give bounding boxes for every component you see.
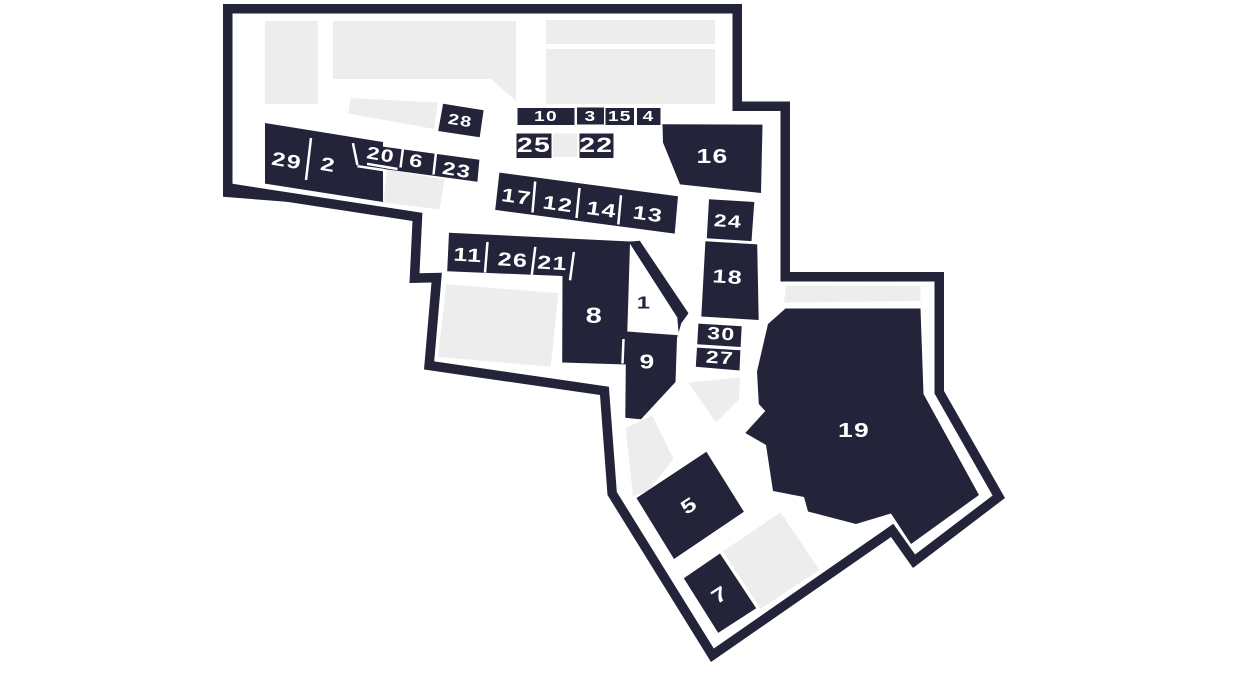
svg-text:24: 24 [713, 211, 742, 232]
svg-text:27: 27 [705, 347, 734, 368]
svg-text:12: 12 [541, 191, 574, 216]
svg-text:13: 13 [631, 201, 664, 226]
svg-text:11: 11 [453, 243, 483, 266]
svg-text:9: 9 [639, 350, 655, 372]
svg-text:30: 30 [707, 323, 736, 344]
svg-text:19: 19 [838, 419, 870, 441]
svg-text:28: 28 [447, 110, 474, 131]
svg-text:18: 18 [712, 265, 744, 288]
svg-text:15: 15 [608, 108, 632, 124]
svg-text:8: 8 [586, 304, 603, 328]
svg-text:25: 25 [517, 133, 551, 157]
svg-text:3: 3 [585, 108, 597, 124]
svg-text:26: 26 [497, 248, 529, 271]
svg-text:17: 17 [500, 184, 533, 209]
svg-text:16: 16 [696, 145, 728, 167]
svg-text:22: 22 [579, 133, 613, 157]
svg-text:10: 10 [534, 108, 558, 124]
svg-text:21: 21 [537, 251, 569, 274]
svg-text:14: 14 [585, 197, 618, 222]
svg-text:1: 1 [637, 293, 652, 313]
svg-text:4: 4 [643, 108, 655, 124]
